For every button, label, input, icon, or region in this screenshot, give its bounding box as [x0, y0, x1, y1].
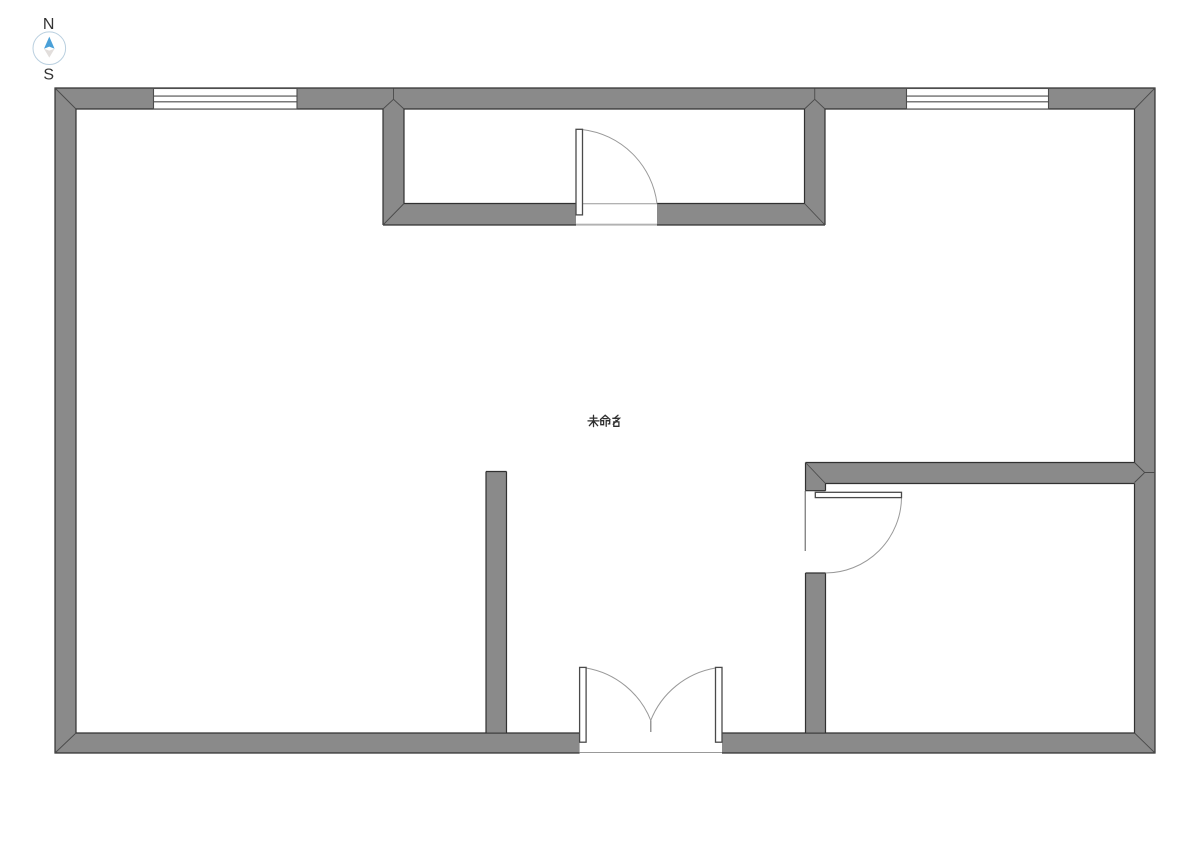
svg-text:S: S	[43, 67, 54, 84]
svg-text:N: N	[43, 16, 55, 33]
